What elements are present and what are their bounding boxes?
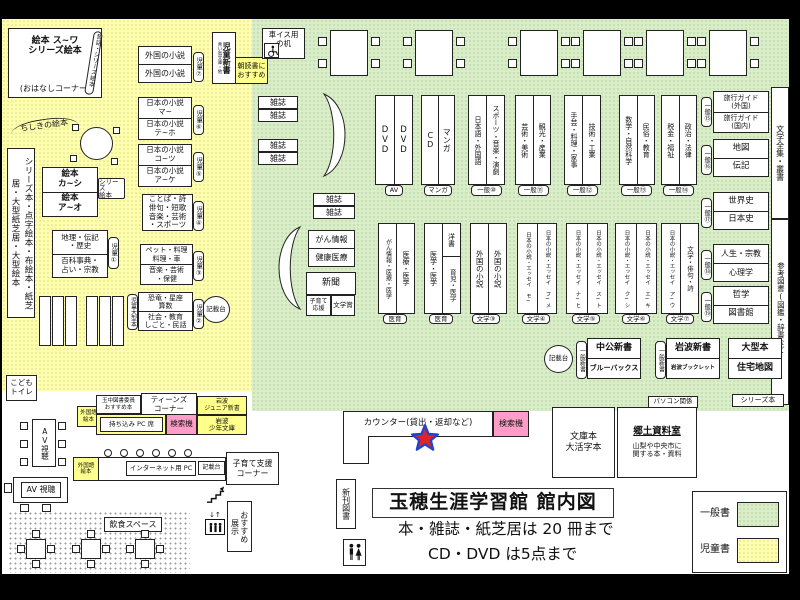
literature-6-caption: 文学⑥ xyxy=(622,314,650,324)
storytime-corner-label: (おはなしコーナー) xyxy=(20,84,90,93)
medical-shelf-1: がん情報・医療・医学 医療・医学 xyxy=(378,223,415,314)
toilet-icon xyxy=(343,539,366,566)
chair xyxy=(111,158,118,165)
general-shelf-13: 数学・自然科学民俗・教育 xyxy=(619,95,655,185)
foreign-language-picture-books-2: 外国語 絵本 xyxy=(73,457,99,481)
chair xyxy=(20,440,28,448)
general-18-tag: 一般⑱ xyxy=(701,250,712,280)
legend-general-swatch xyxy=(737,502,779,527)
chair xyxy=(126,545,134,553)
encyclopedia-label: 百科事典・ 占い・宗教 xyxy=(53,254,107,278)
housing-map-label: 住宅地図 xyxy=(729,358,781,378)
chair xyxy=(58,440,66,448)
children-shinsho-label: 児童新書 xyxy=(222,42,231,74)
shelf-col: 文学・俳句・詩 xyxy=(680,224,699,313)
borrow-limit-av: CD・DVD は5点まで xyxy=(428,546,648,564)
general-14-caption: 一般⑭ xyxy=(663,185,694,196)
dining-space-label: 飲食スペース xyxy=(104,517,162,532)
general-13-caption: 一般⑬ xyxy=(621,185,652,196)
av-caption: AV xyxy=(385,185,403,196)
chair xyxy=(17,545,25,553)
elevator-icon: ↓↑ xyxy=(205,512,225,540)
picture-books-ka-shi: 絵本 カ~シ xyxy=(43,168,97,192)
picture-books-su-wa-label: 絵本 ス~ワ xyxy=(32,36,79,46)
biography-label: 伝記 xyxy=(714,158,768,177)
chair xyxy=(687,59,696,68)
display-label: 展示 xyxy=(230,519,239,535)
chair xyxy=(141,530,149,538)
iwanami-shinsho-label: 岩波新書 xyxy=(667,339,719,358)
chair xyxy=(58,422,66,430)
chair xyxy=(508,59,517,68)
chair xyxy=(58,458,66,466)
low-shelf xyxy=(99,296,111,346)
literature-7-caption: 文学⑦ xyxy=(666,314,694,324)
chair xyxy=(87,560,95,568)
frame-bottom xyxy=(0,574,800,600)
chair xyxy=(571,37,580,46)
iwanami-shonen-bunko: 岩波 少年文庫 xyxy=(197,415,247,435)
chair xyxy=(561,59,570,68)
writing-desk-entrance: 記載台 xyxy=(198,461,225,475)
reading-table xyxy=(330,30,368,76)
chair xyxy=(403,59,412,68)
shelf-col: がん情報・医療・医学 xyxy=(379,224,396,313)
shelf-col: 医学・医学 xyxy=(425,224,442,313)
map-biography-shelf: 地図 伝記 xyxy=(713,139,769,177)
general-11-caption: 一般⑪ xyxy=(518,185,549,196)
shelf-col: 技術・工業 xyxy=(582,96,600,184)
society-folktale-label: 社会・教育 しごと・民話 xyxy=(139,311,192,330)
shelf-col: 政治・法律 xyxy=(679,96,697,184)
chair xyxy=(687,37,696,46)
dinosaur-society-shelf: 恐竜・星座 算数 社会・教育 しごと・民話 xyxy=(138,292,193,331)
shelf-col: 日本の小説・エッセイ モ~ xyxy=(518,224,537,313)
stool xyxy=(152,449,160,457)
cancer-info-label: がん情報 xyxy=(309,231,354,248)
chair xyxy=(87,530,95,538)
stairs-icon xyxy=(204,486,228,504)
new-books-rack: 新刊図書 xyxy=(336,479,356,529)
general-17-tag: 一般⑰ xyxy=(701,198,712,228)
teens-corner: ティーンズ コーナー xyxy=(141,393,197,416)
chuko-shinsho-label: 中公新書 xyxy=(588,339,640,358)
picture-books-shelf: 絵本 カ~シ 絵本 ア~オ xyxy=(42,167,98,217)
current-location-star-icon xyxy=(411,424,439,452)
chair xyxy=(697,37,706,46)
general-19-tag: 一般⑲ xyxy=(701,292,712,322)
low-shelf xyxy=(39,296,51,346)
foreign-novels-label: 外国の小説 xyxy=(139,64,191,82)
dvd-label: DVD xyxy=(394,96,413,184)
library-floor-map: 絵本 ス~ワ シリーズ絵本 (おはなしコーナー) 昔話・シリーズ絵本 ちしきの絵… xyxy=(0,0,800,600)
wheelchair-icon xyxy=(264,43,279,58)
frame-top xyxy=(0,0,800,19)
low-shelf xyxy=(65,296,77,346)
chair xyxy=(456,59,465,68)
chair xyxy=(371,37,380,46)
internet-pc-label: インターネット用 PC xyxy=(126,461,196,476)
stool xyxy=(120,449,128,457)
magazine-rack: 雑誌 xyxy=(258,96,298,109)
series-braille-kamishibai-shelf: シリーズ本・点字絵本・布絵本・紙芝居・大型紙芝居・大型絵本 xyxy=(7,148,35,318)
cancer-health-info-rack: がん情報 健康医療 xyxy=(308,230,355,267)
japanese-novels-children-shelf-1: 日本の小説 マ~ 日本の小説 テ~ホ xyxy=(138,97,192,140)
writing-desk-general: 記載台 xyxy=(544,345,573,373)
legend-children-swatch xyxy=(737,538,779,563)
literature-collection-shelf: 文学全集・叢書 xyxy=(771,87,789,219)
medical-caption-1: 医育 xyxy=(383,314,407,324)
literature-4-caption: 文学④ xyxy=(522,314,550,324)
shelf-col: 数学・自然科学 xyxy=(620,96,637,184)
paperback-large-print-room: 文庫本 大活字本 xyxy=(552,407,615,478)
language-poetry-shelf: ことば・詩 俳句・短歌 音楽・芸術 ・スポーツ xyxy=(142,194,193,231)
reading-table xyxy=(583,30,621,76)
shelf-col: 観光・産業 xyxy=(533,96,551,184)
literature-shelf-6: 日本の小説・エッセイ ク~シ日本の小説・エッセイ エ~キ xyxy=(615,223,657,314)
dining-table xyxy=(81,539,101,559)
japanese-novels-ma-label: 日本の小説 マ~ xyxy=(139,98,191,118)
japanese-novels-te-ho-label: 日本の小説 テ~ホ xyxy=(139,118,191,139)
counter-arm xyxy=(343,436,369,464)
children-tag-1: 児童① xyxy=(108,237,119,269)
recommended-label: おすすめ xyxy=(240,511,249,543)
series-picture-books-label: シリーズ絵本 xyxy=(28,46,82,56)
children-tag-3: 児童③ xyxy=(193,251,204,281)
picture-books-a-o: 絵本 ア~オ xyxy=(43,192,97,217)
legend-children-label: 児童書 xyxy=(700,544,730,556)
chair xyxy=(403,37,412,46)
legend: 一般書 児童書 xyxy=(692,491,787,573)
literary-prize-rack: 文学賞 xyxy=(331,295,355,316)
travel-guide-shelf: 旅行ガイド (外国) 旅行ガイド (国内) xyxy=(713,91,769,133)
japanese-novels-ko-tsu-label: 日本の小説 コ~ツ xyxy=(139,145,191,165)
cd-manga-shelf: CD マンガ xyxy=(421,95,455,185)
children-tag-6: 児童⑥ xyxy=(193,105,204,135)
literature-shelf-3: 外国の小説外国の小説 xyxy=(470,223,507,314)
chair xyxy=(371,59,380,68)
general-10-caption: 一般⑩ xyxy=(471,185,502,196)
iwanami-junior-shinsho: 岩波 ジュニア新書 xyxy=(197,396,247,415)
stool xyxy=(168,449,176,457)
chair xyxy=(32,560,40,568)
western-books-label: 洋書 xyxy=(443,224,460,257)
iwanami-shinsho-shelf: 岩波新書 岩波ブックレット xyxy=(666,338,720,379)
chair xyxy=(72,124,79,131)
pets-cooking-label: ペット・料理 料理・車 xyxy=(141,245,192,264)
chair xyxy=(750,59,759,68)
shelf-col: 日本の小説・エッセイ エ~キ xyxy=(636,224,657,313)
legend-children-row: 児童書 xyxy=(700,538,779,563)
literature-3-caption: 文学③ xyxy=(472,314,500,324)
byod-pc-seats-label: 持ち込み PC 席 xyxy=(100,417,163,432)
general-15-tag: 一般⑮ xyxy=(701,97,712,127)
parenting-support-corner: 子育て支援 コーナー xyxy=(226,452,279,485)
reading-table xyxy=(520,30,558,76)
chair xyxy=(697,59,706,68)
shelf-col: 日本の小説・エッセイ ス~ト xyxy=(587,224,608,313)
chair xyxy=(42,504,51,512)
search-terminal-teens: 検索機 xyxy=(166,414,197,435)
childcare-medical-label: 育児・医学 xyxy=(443,257,460,313)
chair xyxy=(634,59,643,68)
shelf-col: 民俗・教育 xyxy=(637,96,655,184)
stool xyxy=(104,449,112,457)
manga-label: マンガ xyxy=(438,96,455,184)
dinosaur-math-label: 恐竜・星座 算数 xyxy=(139,293,192,311)
stool xyxy=(136,449,144,457)
shelf-col: 税金・福祉 xyxy=(662,96,679,184)
general-shelf-12: 手芸・料理・家事技術・工業 xyxy=(564,95,601,185)
geography-biography-shelf: 地理・伝記 ・歴史 百科事典・ 占い・宗教 xyxy=(52,230,108,278)
chair xyxy=(156,545,164,553)
shelf-col: 外国の小説 xyxy=(471,224,488,313)
low-shelf xyxy=(112,296,124,346)
geography-history-label: 地理・伝記 ・歴史 xyxy=(53,231,107,254)
round-table xyxy=(80,127,113,160)
foreign-novels-children-shelf: 外国の小説 外国の小説 xyxy=(138,46,192,83)
shelf-col: 芸術・美術 xyxy=(516,96,533,184)
recommended-display-rack: 展示 おすすめ xyxy=(227,501,252,552)
crescent-desk xyxy=(266,225,304,311)
children-toilet: こども トイレ xyxy=(6,375,37,401)
shelf-col: 日本の小説・エッセイ ク~シ xyxy=(616,224,636,313)
general-shinsho-tag: 一般新書 xyxy=(576,341,587,379)
japanese-novels-children-shelf-2: 日本の小説 コ~ツ 日本の小説 ア~ケ xyxy=(138,144,192,187)
writing-desk-children: 記載台 xyxy=(202,296,230,323)
chair xyxy=(624,59,633,68)
world-history-label: 世界史 xyxy=(714,193,768,211)
morning-reading-recommend: 朝読書に おすすめ xyxy=(235,57,268,84)
chair xyxy=(20,422,28,430)
search-terminal: 検索機 xyxy=(493,411,529,437)
religion-psychology-shelf: 人生・宗教 心理学 xyxy=(713,244,769,282)
literature-5-caption: 文学⑤ xyxy=(572,314,600,324)
medical-shelf-2: 医学・医学 洋書 育児・医学 xyxy=(424,223,461,314)
av-viewing-table-1: AV視聴 xyxy=(32,419,56,467)
japanese-novels-a-ke-label: 日本の小説 ア~ケ xyxy=(139,165,191,186)
chair xyxy=(571,59,580,68)
low-shelf xyxy=(86,296,98,346)
maps-label: 地図 xyxy=(714,140,768,158)
frame-right xyxy=(789,0,800,600)
local-materials-room: 郷土資料室 山梨や中央市に 関する本・資料 xyxy=(617,407,697,478)
borrow-limit-books: 本・雑誌・紙芝居は 20 冊まで xyxy=(398,521,678,539)
life-religion-label: 人生・宗教 xyxy=(714,245,768,263)
general-16-tag: 一般⑯ xyxy=(701,145,712,175)
iwanami-booklet-label: 岩波ブックレット xyxy=(667,358,719,378)
shelf-col: 日本の小説・エッセイ ナ~ヒ xyxy=(567,224,587,313)
shelf-col: 手芸・料理・家事 xyxy=(565,96,582,184)
large-books-label: 大型本 xyxy=(729,339,781,358)
travel-guide-foreign: 旅行ガイド (外国) xyxy=(714,92,768,112)
cd-label: CD xyxy=(422,96,438,184)
chair xyxy=(113,127,120,134)
series-books-label: シリーズ本 xyxy=(732,394,784,407)
magazine-rack: 雑誌 xyxy=(313,206,355,219)
chair xyxy=(102,545,110,553)
health-medical-label: 健康医療 xyxy=(309,248,354,266)
school-committee-recommend: 玉中図書委員 おすすめ本 xyxy=(96,395,141,414)
chair xyxy=(32,530,40,538)
philosophy-label: 哲学 xyxy=(714,287,768,305)
children-paperback-shelf: 青い鳥文庫・他 児童新書 xyxy=(212,32,236,84)
chuko-shinsho-shelf: 中公新書 ブルーバックス xyxy=(587,338,641,379)
magazine-rack: 雑誌 xyxy=(313,193,355,206)
chair xyxy=(20,458,28,466)
dvd-shelf: DVD DVD xyxy=(375,95,413,185)
philosophy-shelf: 哲学 図書館 xyxy=(713,286,769,324)
chair xyxy=(750,37,759,46)
children-tag-7: 児童⑦ xyxy=(193,52,204,82)
chair xyxy=(561,37,570,46)
low-shelf xyxy=(52,296,64,346)
literature-shelf-7: 日本の小説・エッセイ ア~ウ 文学・俳句・詩 xyxy=(661,223,699,314)
magazine-rack: 雑誌 xyxy=(258,139,298,152)
newspaper-rack: 新聞 xyxy=(306,272,356,295)
shelf-col: 日本の小説・エッセイ ア~ウ xyxy=(662,224,680,313)
music-health-label: 音楽・芸術 ・保健 xyxy=(141,264,192,284)
foreign-novels-label: 外国の小説 xyxy=(139,47,191,64)
children-large-books-tag: 児童大型本 xyxy=(127,294,138,330)
general-shelf-10: 日本語・外国語スポーツ・音楽・演劇 xyxy=(468,95,505,185)
general-12-caption: 一般⑫ xyxy=(567,185,598,196)
bluebacks-label: ブルーバックス xyxy=(588,358,640,378)
literature-shelf-4: 日本の小説・エッセイ モ~日本の小説・エッセイ フ~メ xyxy=(517,223,557,314)
parenting-support-rack: 子育て 応援 xyxy=(306,295,331,316)
shelf-col: 医療・医学 xyxy=(396,224,414,313)
shelf-col: スポーツ・音楽・演劇 xyxy=(486,96,504,184)
general-shelf-11: 芸術・美術観光・産業 xyxy=(515,95,551,185)
chair xyxy=(141,560,149,568)
chair xyxy=(634,37,643,46)
chair xyxy=(20,504,29,512)
chair xyxy=(70,155,77,162)
large-books-shelf: 大型本 住宅地図 xyxy=(728,338,782,379)
children-tag-4: 児童④ xyxy=(193,201,204,231)
children-tag-2: 児童② xyxy=(193,299,204,329)
chair xyxy=(47,545,55,553)
manga-caption: マンガ xyxy=(424,185,452,196)
local-room-title: 郷土資料室 xyxy=(633,427,681,438)
children-tag-5: 児童⑤ xyxy=(193,152,204,182)
travel-guide-domestic: 旅行ガイド (国内) xyxy=(714,112,768,133)
frame-left xyxy=(0,0,2,600)
dining-table xyxy=(26,539,46,559)
dining-table xyxy=(135,539,155,559)
chair xyxy=(456,37,465,46)
general-shelf-14: 税金・福祉政治・法律 xyxy=(661,95,697,185)
magazine-rack: 雑誌 xyxy=(258,109,298,122)
shelf-col: 外国の小説 xyxy=(488,224,506,313)
series-picture-books-tag: シリーズ 絵本 xyxy=(98,178,125,199)
reading-table xyxy=(709,30,747,76)
reading-table xyxy=(415,30,453,76)
literature-shelf-5: 日本の小説・エッセイ ナ~ヒ日本の小説・エッセイ ス~ト xyxy=(566,223,608,314)
av-viewing-label: AV 視聴 xyxy=(21,482,61,498)
psychology-label: 心理学 xyxy=(714,263,768,282)
medical-caption-2: 医育 xyxy=(429,314,453,324)
dvd-label: DVD xyxy=(376,96,394,184)
chair xyxy=(318,37,327,46)
japan-history-label: 日本史 xyxy=(714,211,768,230)
shelf-col: 日本語・外国語 xyxy=(469,96,486,184)
shelf-col: 日本の小説・エッセイ フ~メ xyxy=(537,224,557,313)
pets-cooking-shelf: ペット・料理 料理・車 音楽・芸術 ・保健 xyxy=(140,244,193,285)
library-science-label: 図書館 xyxy=(714,305,768,324)
chair xyxy=(624,37,633,46)
crescent-desk xyxy=(320,92,358,178)
chair xyxy=(72,545,80,553)
general-shinsho-tag: 一般新書 xyxy=(655,341,666,379)
chair xyxy=(508,37,517,46)
chair xyxy=(318,59,327,68)
legend-general-row: 一般書 xyxy=(700,502,779,527)
chair xyxy=(4,483,12,493)
map-title: 玉穂生涯学習館 館内図 xyxy=(372,488,614,518)
stool xyxy=(184,449,192,457)
history-shelf: 世界史 日本史 xyxy=(713,192,769,230)
magazine-rack: 雑誌 xyxy=(258,152,298,165)
legend-general-label: 一般書 xyxy=(700,508,730,520)
reading-table xyxy=(646,30,684,76)
local-room-desc: 山梨や中央市に 関する本・資料 xyxy=(633,442,682,458)
